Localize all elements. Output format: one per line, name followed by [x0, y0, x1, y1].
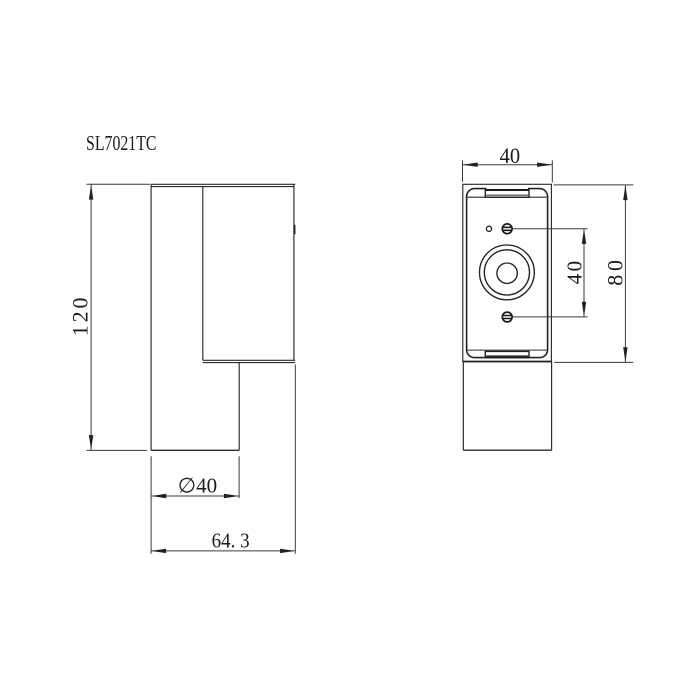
svg-text:40: 40 [500, 143, 520, 168]
svg-text:80: 80 [603, 256, 628, 285]
svg-text:SL7021TC: SL7021TC [86, 131, 157, 155]
svg-text:∅40: ∅40 [178, 474, 217, 498]
svg-text:40: 40 [562, 258, 586, 284]
svg-text:64. 3: 64. 3 [212, 529, 250, 553]
svg-text:120: 120 [68, 295, 93, 337]
